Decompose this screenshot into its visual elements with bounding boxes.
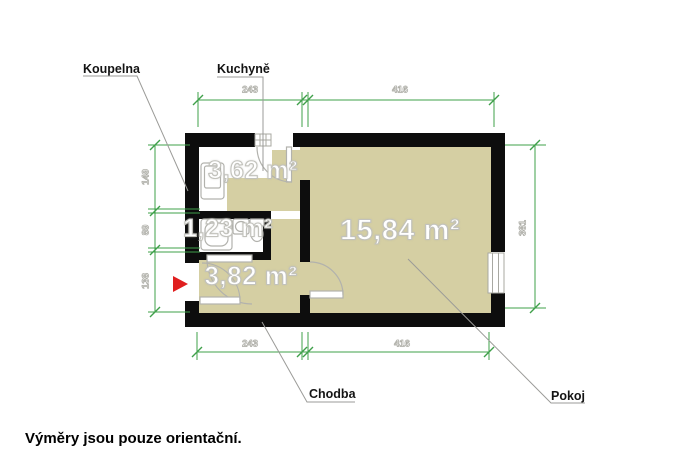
dimension-label-left-kitchen: 149 [141,169,152,185]
entrance-arrow-icon [173,276,188,292]
area-label-pokoj: 15,84 m² [340,215,460,248]
pokoj-doorway-floor [300,262,310,295]
dimension-label-top-left: 243 [242,85,258,96]
room-label-chodba: Chodba [309,387,356,401]
wall-bottom [185,313,505,327]
wall-right-upper [491,133,505,252]
area-label-chodba: 3,82 m² [204,261,297,292]
room-label-kuchyne: Kuchyně [217,62,270,76]
pokoj-window-icon [488,253,504,293]
room-label-koupelna: Koupelna [83,62,140,76]
wall-divider-lower [300,295,310,313]
leader-koupelna [83,76,188,191]
dimension-label-left-bathroom: 89 [141,225,152,236]
room-label-pokoj: Pokoj [551,389,585,403]
area-label-kuchyne: 3,62 m² [208,157,298,186]
floor-plan-page: { "plan": { "rooms": { "kuchyne": { "nam… [0,0,686,457]
dimension-label-top-right: 416 [392,85,408,96]
area-label-koupelna: 1,23 m² [183,215,273,244]
footer-note: Výměry jsou pouze orientační. [25,430,242,447]
dimension-label-right-room: 381 [518,220,529,236]
dimension-label-bottom-left: 243 [242,339,258,350]
dimension-label-bottom-right: 416 [394,339,410,350]
kitchen-doorway-floor [300,147,310,180]
wall-divider-middle [300,180,310,262]
wall-left-upper [185,133,199,263]
wall-right-lower [491,293,505,327]
dimension-label-left-hall: 138 [141,273,152,289]
wall-top-right [293,133,505,147]
corridor-strip-floor [271,219,300,260]
